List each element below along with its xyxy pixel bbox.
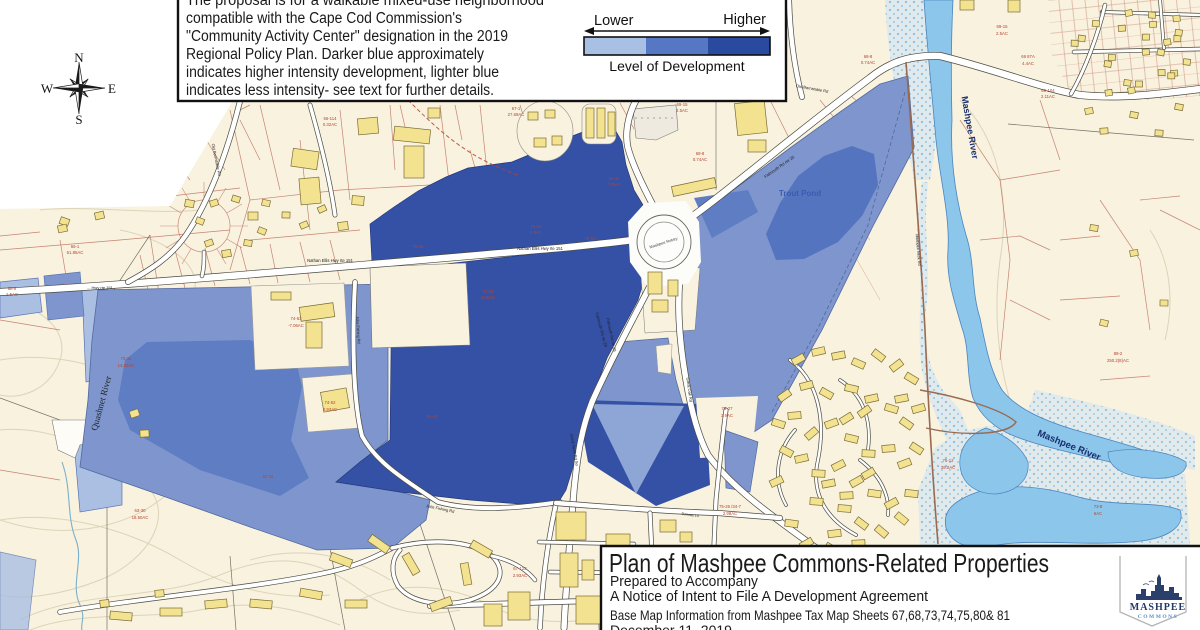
svg-text:0.74AC: 0.74AC bbox=[861, 60, 875, 65]
svg-text:69-15: 69-15 bbox=[677, 102, 689, 107]
svg-text:S: S bbox=[75, 112, 82, 127]
svg-text:Regional Policy Plan. Darker b: Regional Policy Plan. Darker blue approx… bbox=[186, 46, 484, 63]
svg-text:74-53: 74-53 bbox=[291, 316, 303, 321]
svg-text:76-28: 76-28 bbox=[483, 289, 495, 294]
svg-text:indicates higher intensity dev: indicates higher intensity development, … bbox=[186, 64, 499, 81]
svg-text:250.2(8)AC: 250.2(8)AC bbox=[1107, 358, 1129, 363]
svg-text:68-8: 68-8 bbox=[8, 286, 17, 291]
svg-text:2.65AC: 2.65AC bbox=[481, 295, 495, 300]
svg-text:-7.06AC: -7.06AC bbox=[288, 323, 304, 328]
svg-text:67-123: 67-123 bbox=[513, 566, 527, 571]
svg-text:2.98AC: 2.98AC bbox=[723, 511, 737, 516]
svg-text:Level of Development: Level of Development bbox=[609, 58, 745, 74]
svg-text:39.0AC: 39.0AC bbox=[941, 465, 955, 470]
svg-text:69-15: 69-15 bbox=[997, 24, 1009, 29]
svg-text:16-11: 16-11 bbox=[609, 176, 620, 181]
svg-text:2.5AC: 2.5AC bbox=[676, 108, 688, 113]
svg-text:3.9AC: 3.9AC bbox=[721, 413, 733, 418]
svg-text:compatible with the Cape Cod C: compatible with the Cape Cod Commission'… bbox=[186, 10, 462, 27]
svg-text:indicates less intensity- see: indicates less intensity- see text for f… bbox=[186, 82, 494, 99]
svg-text:2.93AC: 2.93AC bbox=[513, 573, 527, 578]
svg-text:E: E bbox=[108, 81, 116, 96]
svg-text:COMMONS: COMMONS bbox=[1138, 614, 1178, 620]
svg-text:72-11: 72-11 bbox=[121, 356, 132, 361]
svg-text:MASHPEE: MASHPEE bbox=[1130, 602, 1186, 613]
svg-text:Nathan Ellis Hwy rte 151: Nathan Ellis Hwy rte 151 bbox=[517, 246, 564, 251]
svg-text:63-30: 63-30 bbox=[135, 508, 147, 513]
svg-text:6AC: 6AC bbox=[1094, 511, 1102, 516]
svg-text:75-26 /34-7: 75-26 /34-7 bbox=[719, 504, 742, 509]
svg-text:14.25AC: 14.25AC bbox=[118, 363, 135, 368]
svg-text:Lower: Lower bbox=[594, 13, 634, 29]
svg-text:76-26: 76-26 bbox=[413, 244, 425, 249]
svg-text:75-27: 75-27 bbox=[722, 406, 734, 411]
svg-text:27.69AC: 27.69AC bbox=[508, 112, 525, 117]
svg-text:0.32AC: 0.32AC bbox=[323, 122, 337, 127]
svg-text:66-1: 66-1 bbox=[71, 244, 80, 249]
svg-text:The proposal is for a walkable: The proposal is for a walkable mixed-use… bbox=[186, 0, 544, 9]
svg-text:"Community Activity Center" de: "Community Activity Center" designation … bbox=[186, 28, 508, 45]
svg-text:Nathan Ellis Hwy rte 151: Nathan Ellis Hwy rte 151 bbox=[307, 258, 354, 263]
svg-text:Base Map Information from Mash: Base Map Information from Mashpee Tax Ma… bbox=[610, 607, 1010, 623]
svg-text:75-12: 75-12 bbox=[943, 458, 955, 463]
svg-text:7.06AC: 7.06AC bbox=[607, 182, 621, 187]
svg-text:2.93AC: 2.93AC bbox=[323, 407, 337, 412]
svg-text:68-8: 68-8 bbox=[864, 54, 873, 59]
svg-text:76-14: 76-14 bbox=[585, 236, 597, 241]
svg-text:W: W bbox=[41, 81, 54, 96]
svg-text:1.5AC: 1.5AC bbox=[6, 292, 18, 297]
svg-text:'61-41: '61-41 bbox=[426, 414, 438, 419]
svg-text:68-8: 68-8 bbox=[696, 151, 705, 156]
svg-text:2.11AC: 2.11AC bbox=[1041, 94, 1055, 99]
svg-text:76-13: 76-13 bbox=[531, 224, 543, 229]
svg-text:2.5AC: 2.5AC bbox=[996, 31, 1008, 36]
svg-text:3.9AC: 3.9AC bbox=[530, 230, 542, 235]
svg-text:67-1: 67-1 bbox=[512, 106, 521, 111]
svg-text:66-114: 66-114 bbox=[323, 116, 337, 121]
svg-text:18.50AC: 18.50AC bbox=[132, 515, 149, 520]
svg-text:69 87A: 69 87A bbox=[1021, 54, 1035, 59]
svg-text:Trout Pond: Trout Pond bbox=[779, 189, 821, 198]
svg-text:Higher: Higher bbox=[723, 12, 766, 28]
svg-text:51.85AC: 51.85AC bbox=[67, 250, 84, 255]
svg-text:4.4AC: 4.4AC bbox=[1022, 61, 1034, 66]
svg-text:... Hwy rte 151: ... Hwy rte 151 bbox=[87, 285, 114, 290]
svg-text:0.74AC: 0.74AC bbox=[693, 157, 707, 162]
svg-text:N: N bbox=[74, 50, 84, 65]
svg-text:88-2: 88-2 bbox=[1114, 351, 1123, 356]
svg-text:A Notice of Intent to File A D: A Notice of Intent to File A Development… bbox=[610, 588, 929, 605]
svg-text:69-104: 69-104 bbox=[1041, 88, 1055, 93]
svg-text:73-8: 73-8 bbox=[1094, 504, 1103, 509]
svg-text:December 11, 2019: December 11, 2019 bbox=[610, 622, 732, 630]
svg-text:67-11: 67-11 bbox=[263, 474, 274, 479]
svg-text:74-52: 74-52 bbox=[325, 400, 337, 405]
